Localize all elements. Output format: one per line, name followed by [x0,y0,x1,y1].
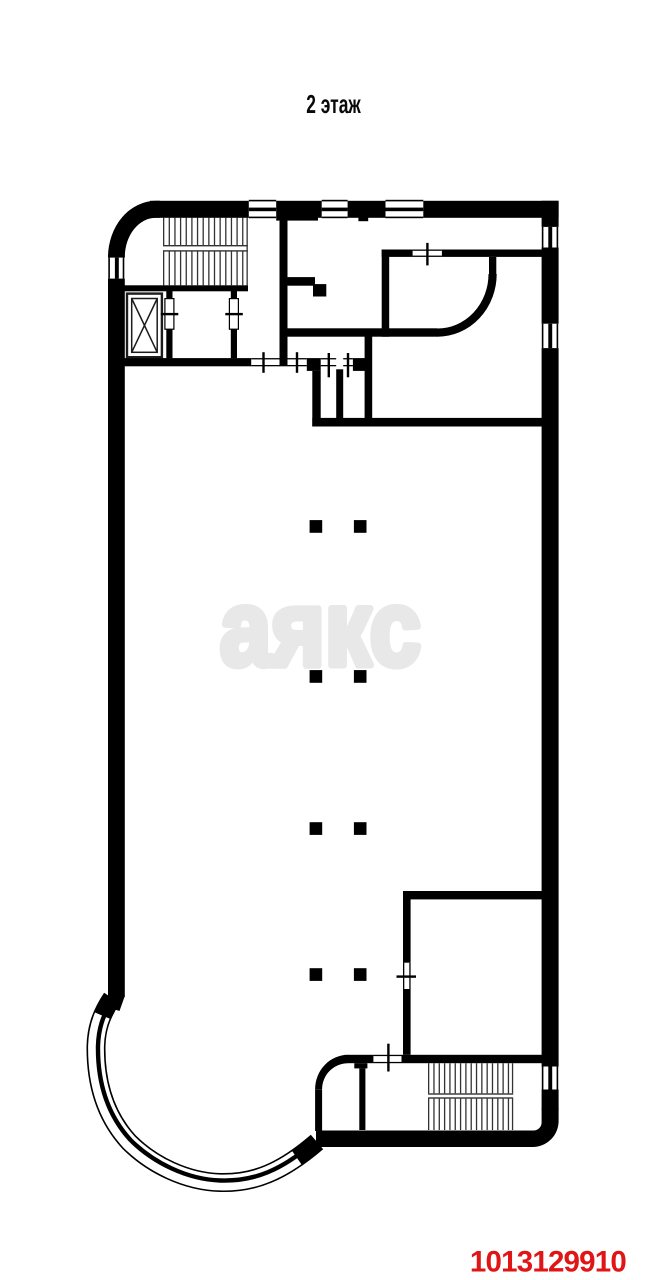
svg-text:1013129910: 1013129910 [470,1246,626,1279]
svg-text:2 этаж: 2 этаж [306,90,361,119]
